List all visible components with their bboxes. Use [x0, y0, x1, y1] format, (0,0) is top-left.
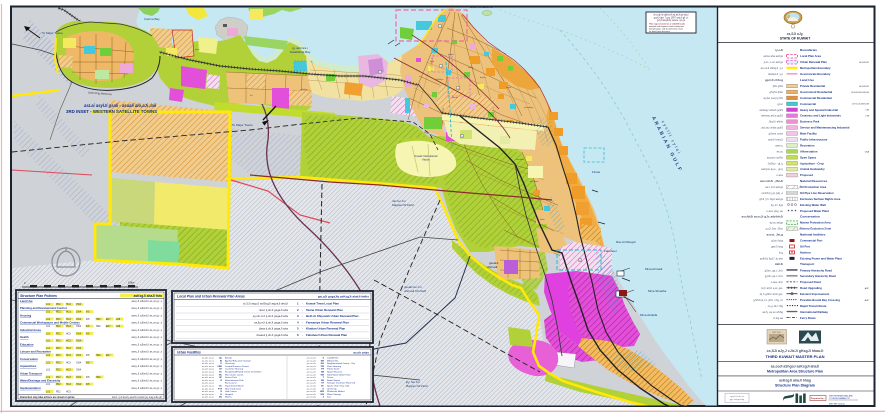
svg-text:,as as,aJc: ,as as,aJc [306, 358, 317, 360]
svg-text:asKsgJi ahaJi hhag: asKsgJi ahaJi hhag [779, 378, 811, 382]
svg-text:Commercial: Commercial [800, 102, 816, 106]
svg-text:HG3: HG3 [66, 362, 71, 364]
svg-text:asey,Ji aJlwcUi as,us gc ,s: asey,Ji aJlwcUi as,us gc ,s [131, 357, 162, 361]
svg-text:HOU/GLHOU/HOH: HOU/GLHOU/HOH [851, 92, 869, 94]
svg-text:Governorate Boundary: Governorate Boundary [800, 72, 831, 76]
svg-text:o,aos ylsg ,ao: o,aos ylsg ,ao [766, 209, 783, 213]
svg-text:Water/Drainage and Electricity: Water/Drainage and Electricity [20, 379, 61, 383]
svg-text:jahra: jahra [194, 49, 200, 51]
svg-text:Agriculture - Crop: Agriculture - Crop [800, 161, 824, 165]
svg-text:asey,Ji aJlwcUi as,us gc ,s: asey,Ji aJlwcUi as,us gc ,s [131, 386, 162, 390]
svg-text:LU1: LU1 [46, 391, 51, 393]
svg-text:LR8: LR8 [116, 326, 121, 328]
svg-text:AUP: AUP [865, 299, 870, 302]
svg-text:Farwaniya Urban Renewal Plan: Farwaniya Urban Renewal Plan [306, 320, 349, 324]
svg-text:Public South: Public South [327, 368, 340, 371]
svg-text:To Major Towns: To Major Towns [232, 123, 253, 127]
svg-text:NC: NC [219, 374, 223, 376]
svg-text:g,loc: g,loc [777, 102, 783, 106]
svg-text:LU1: LU1 [46, 312, 51, 314]
svg-text:,as as,aJc: ,as as,aJc [306, 397, 317, 399]
svg-text:aheleoJi ,y,o: aheleoJi ,y,o [768, 72, 783, 76]
svg-text:salmy: salmy [468, 67, 473, 69]
svg-text:PD2: PD2 [56, 355, 61, 357]
svg-text:HG3: HG3 [66, 341, 71, 343]
svg-text:as,aJc as,as: as,aJc as,as [202, 363, 215, 365]
svg-text:Rapid Transit Route: Rapid Transit Route [800, 304, 827, 308]
svg-text:HOU/HOU: HOU/HOU [859, 62, 869, 64]
svg-text:gyClc ga,c Js,h: gyClc ga,c Js,h [765, 274, 784, 278]
svg-text:CBD: CBD [217, 366, 222, 368]
svg-text:Wholesale Market: Wholesale Market [327, 390, 345, 393]
svg-text:Js,h aClc a,ei, gei,: Js,h aClc a,ei, gei, [761, 286, 783, 290]
svg-text:CHI: CHI [865, 116, 869, 118]
svg-text:CW4: CW4 [76, 370, 82, 372]
svg-text:KWT REF 12/2011: KWT REF 12/2011 [829, 404, 845, 406]
svg-text:PD2: PD2 [56, 362, 61, 364]
svg-text:Main Facility: Main Facility [800, 132, 817, 136]
svg-text:PD2: PD2 [56, 370, 61, 372]
svg-text:University: University [225, 362, 236, 365]
svg-text:cs,SJi asgoJ aslSsgJi asjyaJi: cs,SJi asgoJ aslSsgJi asjyaJi ahaJi [243, 302, 289, 306]
svg-text:ED7: ED7 [106, 326, 111, 328]
svg-text:as,aJc as,as: as,aJc as,as [202, 397, 215, 399]
svg-text:gsoali hei Jm: gsoali hei Jm [404, 285, 422, 289]
svg-text:JsSloo - gLi,j: JsSloo - gLi,j [768, 161, 784, 165]
svg-text:Business Park: Business Park [800, 120, 820, 124]
svg-text:Supermarket Basin: Supermarket Basin [225, 385, 244, 388]
svg-text:Possible Bound Bay Crossing: Possible Bound Bay Crossing [800, 298, 840, 302]
svg-text:HG3: HG3 [66, 326, 71, 328]
svg-text:Fintas: Fintas [592, 170, 601, 174]
svg-text:Prepared by :: Prepared by : [811, 398, 825, 400]
svg-text:HG3: HG3 [66, 377, 71, 379]
svg-text:-: - [302, 302, 303, 306]
svg-text:Sports Club / Sea Club: Sports Club / Sea Club [327, 385, 350, 388]
svg-text:Implementation: Implementation [20, 386, 41, 390]
svg-text:Exclusive Surface Rights Area: Exclusive Surface Rights Area [800, 197, 841, 201]
svg-text:Water Storage: Water Storage [327, 393, 342, 396]
svg-text:Industrial Areas: Industrial Areas [20, 328, 41, 332]
svg-text:funaitees: funaitees [516, 158, 524, 161]
svg-text:as,ooJi aShgoJ asKsgJi ahaJi: as,ooJi aShgoJ asKsgJi ahaJi [771, 364, 819, 368]
svg-text:Kuwait International: Kuwait International [415, 154, 438, 158]
svg-text:International Railway: International Railway [800, 310, 828, 314]
svg-text:Neighbourhood Centre - City: Neighbourhood Centre - City [327, 362, 356, 365]
svg-text:Marina: Marina [225, 396, 232, 399]
svg-text:ilosc ji,ohJi gsgaJi aha: ilosc ji,ohJi gsgaJi aha [259, 308, 288, 312]
svg-text:as,ooJi aShgJi ,y,o: as,ooJi aShgJi ,y,o [761, 66, 784, 70]
svg-text:Planning and Development Contr: Planning and Development Control [20, 306, 67, 310]
svg-text:ay,lac caoyy jSls: ay,lac caoyy jSls [763, 96, 783, 100]
svg-text:as,aJc as,as: as,aJc as,as [202, 388, 215, 390]
svg-text:Prison: Prison [327, 376, 334, 379]
svg-text:10km: 10km [128, 281, 134, 285]
svg-text:-: - [302, 314, 303, 318]
svg-text:Afforestation: Afforestation [800, 149, 818, 153]
svg-text:KWT 2005: KWT 2005 [772, 332, 780, 334]
svg-text:Urban Renewal Plan: Urban Renewal Plan [800, 60, 827, 64]
svg-text:Place Housing: Place Housing [327, 366, 342, 368]
svg-text:HE6: HE6 [96, 355, 101, 357]
svg-text:,as as,aJc: ,as as,aJc [306, 377, 317, 379]
svg-text:gSySo jlSsi: gSySo jlSsi [769, 90, 783, 94]
svg-text:Harbour: Harbour [800, 250, 812, 254]
svg-text:,as as,aJc: ,as as,aJc [306, 374, 317, 376]
svg-text:Commercial Residential: Commercial Residential [800, 96, 832, 100]
svg-text:Kazma Bay: Kazma Bay [144, 17, 160, 21]
svg-text:LU1: LU1 [46, 355, 51, 357]
svg-text:AUP: AUP [865, 287, 870, 290]
svg-text:Conservation: Conservation [20, 357, 38, 361]
svg-text:asey,Ji aJlwcUi as,us gc ,s: asey,Ji aJlwcUi as,us gc ,s [131, 342, 162, 346]
svg-text:asey,Ji aJlwcUi as,us gc ,s: asey,Ji aJlwcUi as,us gc ,s [131, 313, 162, 317]
svg-text:CW4: CW4 [76, 341, 82, 343]
svg-text:jscl,ay cisloa gcliS: jscl,ay cisloa gcliS [760, 126, 783, 130]
svg-text:Secondary Hierarchy Road: Secondary Hierarchy Road [800, 274, 836, 278]
svg-text:Taima Urban Renewal Plan: Taima Urban Renewal Plan [306, 308, 343, 312]
svg-text:New Trade Zone: New Trade Zone [225, 387, 242, 390]
svg-text:GC: GC [219, 386, 223, 388]
svg-text:Urban Facilities: Urban Facilities [177, 351, 201, 355]
svg-text:aoyceo aolSs: aoyceo aolSs [767, 155, 784, 159]
svg-text:as,aJc as,as: as,aJc as,as [202, 383, 215, 385]
svg-text:gSso, ga,c Js,h: gSso, ga,c Js,h [765, 268, 784, 272]
svg-text:Proposed Water Plant: Proposed Water Plant [800, 209, 829, 213]
svg-text:District Park: District Park [225, 376, 238, 379]
svg-text:WS: WS [320, 394, 324, 396]
svg-text:Transport: Transport [800, 262, 814, 266]
svg-text:o,aos Js,h: o,aos Js,h [771, 280, 784, 284]
svg-text:jliy. hei Jm: jliy. hei Jm [405, 380, 420, 384]
svg-text:as,aJc as,as: as,aJc as,as [202, 374, 215, 376]
svg-text:as,aJc as,as: as,aJc as,as [202, 358, 215, 360]
svg-text:History Exclusion Zone: History Exclusion Zone [800, 227, 832, 231]
svg-text:Existent Improvement: Existent Improvement [800, 292, 829, 296]
svg-text:as,aJc as,as: as,aJc as,as [202, 391, 215, 393]
svg-text:ED7: ED7 [106, 355, 111, 357]
svg-text:im,a gk lis glahsUi aa,abJi gs: im,a gk lis glahsUi aa,abJi gs aoa,i [653, 15, 689, 17]
svg-text:JlocUi ahhis: JlocUi ahhis [769, 120, 784, 124]
svg-text:LU1: LU1 [46, 341, 51, 343]
svg-text:Land Use: Land Use [800, 78, 814, 82]
svg-text:FTZ: FTZ [218, 388, 223, 390]
svg-text:University: University [327, 387, 338, 390]
svg-text:PD2: PD2 [56, 312, 61, 314]
svg-text:Urban Transport: Urban Transport [20, 371, 42, 375]
svg-text:,as as,aJc: ,as as,aJc [306, 363, 317, 365]
svg-text:frd: frd [250, 95, 252, 97]
svg-text:asJiyso ay,e - gLi,j: asJiyso ay,e - gLi,j [761, 167, 783, 171]
svg-text:-: - [302, 327, 303, 331]
svg-text:Oil Pipe Line Reservation: Oil Pipe Line Reservation [800, 191, 834, 195]
svg-text:material and requires careful: material and requires careful study and [649, 25, 684, 28]
svg-text:guyJi aleghJly aysoe ,so gs: guyJi aleghJly aysoe ,so gs [657, 20, 686, 22]
svg-text:CW4: CW4 [76, 377, 82, 379]
svg-text:Js,h gJlCc aClc gei,: Js,h gJlCc aClc gei, [759, 292, 783, 296]
svg-text:asey,Ji aJlwcUi as,us gc ,s: asey,Ji aJlwcUi as,us gc ,s [131, 299, 162, 303]
svg-text:adan: adan [540, 219, 544, 221]
svg-text:Beth Al Shiyoukh Urban Renewal: Beth Al Shiyoukh Urban Renewal Plan [306, 314, 359, 318]
svg-text:,as as,aJc: ,as as,aJc [306, 391, 317, 393]
svg-text:HG3: HG3 [66, 333, 71, 335]
svg-text:COLIN BUCHANAN LTD: COLIN BUCHANAN LTD [829, 397, 851, 400]
svg-text:asey,Ji aJlwcUi as,us gc ,s: asey,Ji aJlwcUi as,us gc ,s [131, 306, 162, 310]
svg-text:Open Space: Open Space [800, 155, 817, 159]
svg-text:Public Infrastructure: Public Infrastructure [800, 137, 828, 141]
svg-text:Heavy and Special Industrial: Heavy and Special Industrial [800, 108, 838, 112]
svg-text:SB: SB [321, 372, 324, 374]
svg-text:,as as,aJc: ,as as,aJc [306, 369, 317, 371]
svg-text:Golf Course: Golf Course [225, 390, 237, 393]
svg-text:-: - [302, 320, 303, 324]
svg-text:JaCJi: JaCJi [775, 262, 783, 266]
svg-text:G: G [220, 391, 222, 393]
svg-text:sulaibiya: sulaibiya [300, 89, 309, 91]
svg-text:Recreation: Recreation [800, 143, 815, 147]
svg-text:as,aJc as,as: as,aJc as,as [202, 360, 215, 362]
svg-text:asJiy,eJi ji,ohJi gsgaJi aha: asJiy,eJi ji,ohJi gsgaJi aha [254, 320, 288, 324]
svg-text:es,oc: es,oc [777, 150, 784, 153]
svg-text:o,aos: o,aos [776, 174, 783, 177]
svg-text:alybi: alybi [430, 61, 435, 63]
svg-text:HG3: HG3 [66, 355, 71, 357]
svg-text:gpi,Ui cUlog: gpi,Ui cUlog [765, 78, 783, 82]
svg-text:Aquaculture: Aquaculture [20, 364, 37, 368]
svg-text:lasJc ,lyJi aswly aoe0Ji culsa: lasJc ,lyJi aswly aoe0Ji culsaJi jsy lea… [112, 396, 162, 399]
svg-text:WM: WM [320, 391, 324, 393]
svg-text:War Claims Centre: War Claims Centre [225, 373, 244, 376]
svg-text:LU1: LU1 [46, 326, 51, 328]
svg-text:asKsgJi ahaJi fslw: asKsgJi ahaJi fslw [134, 294, 163, 298]
svg-text:gsi,aJi gsgaJiy asKsgJi ahaUi: gsi,aJi gsgaJiy asKsgJi ahaUi fwlhs [318, 295, 370, 299]
svg-text:CIN: CIN [865, 110, 869, 112]
svg-text:HG3: HG3 [66, 348, 71, 350]
svg-text:Landfill Site: Landfill Site [327, 357, 339, 360]
svg-text:Health: Health [20, 335, 29, 339]
svg-text:Central Business District: Central Business District [225, 365, 249, 368]
svg-text:National facilities: National facilities [800, 232, 826, 236]
svg-text:PM: PM [321, 366, 324, 368]
svg-text:Road Upgrading: Road Upgrading [800, 286, 822, 290]
svg-text:,as as,aJc: ,as as,aJc [306, 388, 317, 390]
svg-text:g,loc ilcsg: g,loc ilcsg [771, 239, 783, 243]
svg-text:asey,Ji aJlwcUi as,us gc ,s: asey,Ji aJlwcUi as,us gc ,s [131, 371, 162, 375]
svg-text:HE6: HE6 [96, 319, 101, 321]
svg-text:Radio Station: Radio Station [327, 379, 341, 382]
svg-text:-: - [302, 333, 303, 337]
svg-text:Jai hei Jm: Jai hei Jm [392, 199, 406, 203]
svg-text:ay,oc aslgo: ay,oc aslgo [770, 221, 784, 225]
svg-text:To Major Towns: To Major Towns [42, 31, 63, 35]
svg-text:Khaitan Urban Renewal Plan: Khaitan Urban Renewal Plan [306, 327, 345, 331]
svg-text:Hospital: Hospital [225, 393, 233, 396]
svg-text:PD2: PD2 [56, 341, 61, 343]
svg-text:asey,Ji aJlwcUi as,us gc ,s: asey,Ji aJlwcUi as,us gc ,s [131, 379, 162, 383]
svg-text:Sulaibikhat Bay: Sulaibikhat Bay [290, 50, 311, 54]
svg-text:Marine Protection Area: Marine Protection Area [800, 221, 831, 225]
svg-text:asloUi asicJi: asloUi asicJi [768, 137, 783, 141]
svg-text:Entertainment Park: Entertainment Park [225, 379, 245, 382]
svg-text:CW4: CW4 [76, 362, 82, 364]
svg-text:aschhJi acscJi gJc adelohJi: aschhJi acscJi gJc adelohJi [742, 215, 784, 219]
svg-text:csclJUi jy,jo jslg ,o: csclJUi jy,jo jslg ,o [761, 191, 783, 195]
svg-text:Land Use: Land Use [20, 299, 33, 303]
svg-text:Militant Site: Militant Site [327, 359, 339, 362]
svg-text:Residential/Flatted Centre 27x: Residential/Flatted Centre 27x37x47x [225, 371, 262, 374]
svg-text:Ras Al Mangaf: Ras Al Mangaf [616, 240, 636, 244]
svg-text:Commercial Workspaces and Mobi: Commercial Workspaces and Mobile Centres [20, 321, 80, 325]
svg-text:interpretation, and should not: interpretation, and should not be used [649, 28, 683, 31]
svg-text:gSses ceiys: gSses ceiys [769, 132, 784, 136]
svg-text:3RD INSET - WESTERN SATELLITE: 3RD INSET - WESTERN SATELLITE TOWNS [66, 109, 157, 114]
svg-text:Metropolitan Boundary: Metropolitan Boundary [800, 66, 831, 70]
svg-text:Sewage Treatment Plant 5x6: Sewage Treatment Plant 5x6 [327, 382, 356, 385]
svg-text:Mina Abdulla: Mina Abdulla [640, 313, 658, 317]
svg-text:for detail plan decisions.: for detail plan decisions. [649, 30, 671, 33]
svg-text:LU1: LU1 [46, 333, 51, 335]
svg-text:,as as,aJc: ,as as,aJc [306, 386, 317, 388]
svg-text:Animal Husbandry: Animal Husbandry [800, 167, 825, 171]
svg-text:Existing Power and Water Plant: Existing Power and Water Plant [800, 256, 842, 260]
svg-text:Housing: Housing [20, 313, 31, 317]
svg-text:Commercial Port: Commercial Port [800, 239, 822, 243]
svg-text:NG: NG [321, 363, 325, 365]
svg-text:bayan: bayan [480, 77, 485, 79]
svg-text:asey,Ji aJlwcUi as,us gc ,s: asey,Ji aJlwcUi as,us gc ,s [131, 335, 162, 339]
svg-text:,as as,aJc: ,as as,aJc [306, 360, 317, 362]
svg-text:Nature Reserve: Nature Reserve [327, 371, 343, 374]
svg-text:Oil Port: Oil Port [800, 244, 810, 248]
svg-text:Fahaheel: Fahaheel [604, 249, 617, 253]
svg-text:as,aJc as,as: as,aJc as,as [202, 394, 215, 396]
svg-text:USA: USA [865, 150, 870, 153]
svg-text:,as as,aJc: ,as as,aJc [306, 394, 317, 396]
svg-text:HE6: HE6 [96, 377, 101, 379]
svg-text:ascsshJi ,,lSoJi: ascsshJi ,,lSoJi [760, 179, 783, 183]
svg-text:,as as,aJc: ,as as,aJc [306, 372, 317, 374]
svg-text:Service and Maintenancing Indu: Service and Maintenancing Industrial [800, 126, 850, 130]
svg-text:asey,Ji aJlwcUi as,us gc ,s: asey,Ji aJlwcUi as,us gc ,s [131, 364, 162, 368]
svg-text:PD2: PD2 [56, 348, 61, 350]
svg-text:rumaithiya: rumaithiya [524, 106, 534, 109]
svg-text:Airstrip: Airstrip [225, 357, 233, 360]
svg-text:PD2: PD2 [56, 391, 61, 393]
svg-text:aolhJiy ilgJJ ,ly aho: aolhJiy ilgJJ ,ly aho [760, 256, 784, 260]
svg-text:LU1: LU1 [46, 362, 51, 364]
svg-text:HE6: HE6 [96, 326, 101, 328]
svg-text:Solid Waste Water Plant: Solid Waste Water Plant [327, 373, 351, 376]
svg-text:Applied Education Institute: Applied Education Institute [225, 359, 252, 362]
svg-text:abu ftaira: abu ftaira [530, 180, 539, 183]
svg-text:LR8: LR8 [116, 319, 121, 321]
svg-text:CW4: CW4 [76, 312, 82, 314]
svg-text:asey,Ji aJlwcUi as,us gc ,s: asey,Ji aJlwcUi as,us gc ,s [131, 350, 162, 354]
svg-text:asey,Ji aJlwcUi as,us gc ,s: asey,Ji aJlwcUi as,us gc ,s [131, 321, 162, 325]
svg-text:Structure Plan Policies: Structure Plan Policies [20, 294, 57, 298]
svg-text:Airport: Airport [422, 158, 430, 162]
svg-text:jabriya: jabriya [451, 97, 459, 99]
svg-text:CW4: CW4 [76, 384, 82, 386]
svg-text:Interaction may take actions a: Interaction may take actions are shown i… [20, 396, 75, 399]
svg-text:as,aJc as,as: as,aJc as,as [202, 377, 215, 379]
svg-text:HG3: HG3 [66, 304, 71, 306]
svg-text:Conservation: Conservation [800, 215, 820, 219]
svg-text:as,aJc as,as: as,aJc as,as [202, 372, 215, 374]
svg-text:as,oh ceiys: as,oh ceiys [353, 351, 369, 355]
svg-text:Racecourse: Racecourse [225, 382, 237, 385]
svg-text:jlasa ji,ohJi gsgaJi aha: jlasa ji,ohJi gsgaJi aha [258, 327, 288, 331]
svg-text:gaeJ ilcsg: gaeJ ilcsg [771, 244, 783, 248]
svg-text:as,aJc as,as: as,aJc as,as [202, 380, 215, 382]
svg-text:PD2: PD2 [56, 333, 61, 335]
svg-text:ases,c: ases,c [775, 144, 783, 147]
svg-text:Fahaheel Urban Renewal Plan: Fahaheel Urban Renewal Plan [306, 333, 347, 337]
svg-text:as,aJc as,as: as,aJc as,as [202, 366, 215, 368]
svg-text:jSls glSs: jSls glSs [772, 84, 784, 88]
svg-text:Jsoaeli ji,ohJi gsgaJi aha: Jsoaeli ji,ohJi gsgaJi aha [256, 333, 288, 337]
svg-text:ghJi 'y,h Jigci aehgs: ghJi 'y,h Jigci aehgs [759, 197, 783, 201]
svg-text:Burgan Oil Field: Burgan Oil Field [406, 384, 428, 388]
svg-text:LU1: LU1 [46, 384, 51, 386]
svg-text:ci,lcg aa: ci,lcg aa [773, 316, 783, 320]
svg-text:ji,os ,s,oc aehgs: ji,os ,s,oc aehgs [763, 60, 784, 64]
svg-text:Education: Education [20, 342, 34, 346]
svg-text:,y,oJi Jwc ,lSso: ,y,oJi Jwc ,lSso [765, 227, 784, 231]
svg-text:CW4: CW4 [76, 348, 82, 350]
svg-text:SC: SC [321, 386, 324, 388]
svg-text:aeseay ael,a gcliS: aeseay ael,a gcliS [761, 114, 783, 118]
svg-text:ED7: ED7 [106, 319, 111, 321]
svg-text:jyShJi js,cJ ,ylhs ,chg ,cc: jyShJi js,cJ ,ylhs ,chg ,cc [752, 298, 783, 302]
svg-text:SC: SC [219, 372, 222, 374]
svg-text:CIT/CC/CDN/CDN: CIT/CC/CDN/CDN [852, 104, 870, 106]
svg-text:,as as,aJc: ,as as,aJc [306, 380, 317, 382]
svg-text:MS: MS [321, 360, 325, 362]
svg-text:Natural Resources: Natural Resources [800, 179, 828, 183]
svg-text:Ahmadi: Ahmadi [486, 265, 498, 269]
svg-text:asey,Ji aJlwcUi as,us gc ,s: asey,Ji aJlwcUi as,us gc ,s [131, 328, 162, 332]
svg-text:CW4: CW4 [76, 333, 82, 335]
svg-text:HG3: HG3 [66, 391, 71, 393]
svg-text:LU1: LU1 [46, 370, 51, 372]
svg-text:gy,c Jse ge caly,: gy,c Jse ge caly, [730, 399, 745, 401]
svg-text:asJy, as,so aSSg: asJy, as,so aSSg [762, 310, 783, 314]
svg-text:Kuwait Town Local Plan: Kuwait Town Local Plan [306, 302, 339, 306]
svg-text:,sy,aJi ,lc ah, i,lc: ,sy,aJi ,lc ah, i,lc [730, 396, 744, 398]
svg-text:ascsi, Jei,g: ascsi, Jei,g [766, 232, 783, 236]
svg-text:Ahmadi Oil Field: Ahmadi Oil Field [403, 289, 426, 293]
svg-text:aeJ ,lcJi aehgs: aeJ ,lcJi aehgs [765, 185, 783, 189]
svg-text:RS: RS [321, 380, 325, 382]
svg-text:Structure Plan Diagram: Structure Plan Diagram [775, 384, 815, 388]
svg-text:asLai asylJi gsali - asuali al: asLai asylJi gsali - asuali alo,aJi ,lai… [84, 103, 157, 108]
svg-text:Government Residential: Government Residential [800, 90, 832, 94]
svg-text:cs,g JaJ ,lSg: cs,g JaJ ,lSg [768, 304, 784, 308]
svg-text:Oil Production Area: Oil Production Area [800, 185, 827, 189]
svg-text:Magwa Oil Field: Magwa Oil Field [392, 203, 414, 207]
svg-text:-: - [302, 308, 303, 312]
svg-text:aclseay aJash gcliS: aclseay aJash gcliS [759, 108, 783, 112]
svg-text:Leisure and Recreation: Leisure and Recreation [20, 350, 51, 354]
svg-text:Local Plan Area: Local Plan Area [800, 54, 821, 58]
svg-text:HG3: HG3 [66, 312, 71, 314]
svg-text:as,aJc as,as: as,aJc as,as [202, 386, 215, 388]
svg-text:Ferry Route: Ferry Route [800, 316, 816, 320]
svg-text:guytJi glei 7 gsy 1997 asiyJi: guytJi glei 7 gsy 1997 asiyJi glt ,is [654, 16, 689, 19]
svg-text:PD2: PD2 [56, 384, 61, 386]
svg-text:Metropolitan Area Structure Pl: Metropolitan Area Structure Plan [767, 369, 823, 373]
